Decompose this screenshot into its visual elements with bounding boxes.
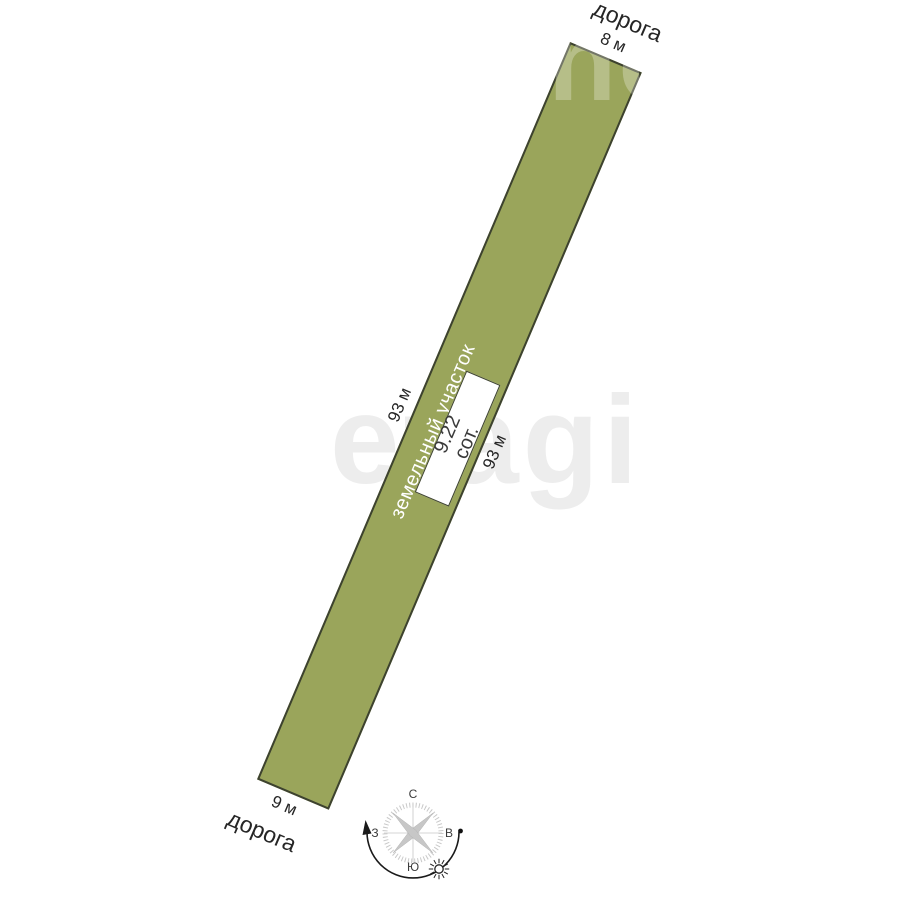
compass-north-label: С	[409, 787, 418, 801]
compass-rose: С Ю З В	[353, 773, 473, 893]
land-plot-scheme: etagi земельный участок 9.22 сот. no дор…	[0, 0, 900, 900]
compass-south-label: Ю	[407, 860, 419, 874]
compass-east-label: В	[445, 826, 453, 840]
sun-icon	[429, 859, 449, 879]
sun-path-start-dot	[458, 829, 463, 834]
compass-west-label: З	[371, 826, 378, 840]
sun-path-arrowhead	[363, 820, 372, 835]
